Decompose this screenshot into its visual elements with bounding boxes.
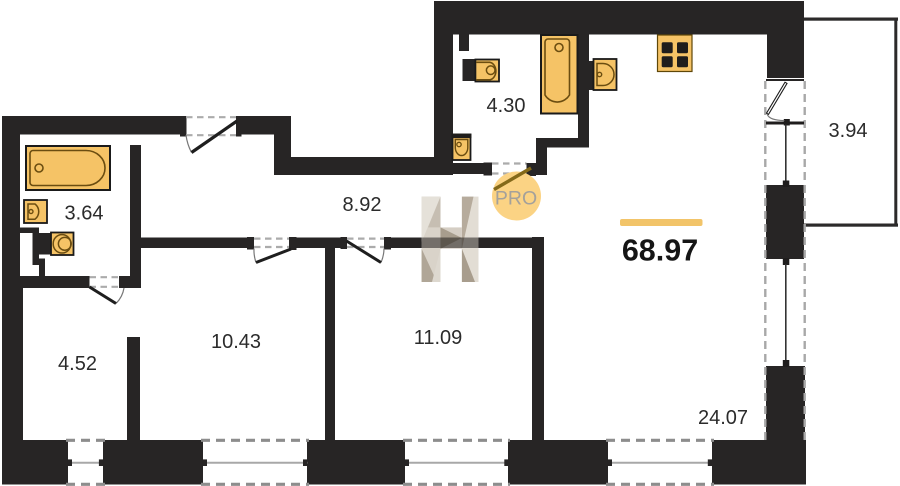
svg-text:4.52: 4.52 xyxy=(58,353,97,375)
svg-text:4.30: 4.30 xyxy=(487,95,526,117)
svg-text:10.43: 10.43 xyxy=(211,331,261,353)
svg-text:24.07: 24.07 xyxy=(698,407,748,429)
svg-text:3.94: 3.94 xyxy=(829,120,868,142)
svg-text:68.97: 68.97 xyxy=(622,234,698,268)
svg-text:8.92: 8.92 xyxy=(343,194,382,216)
svg-text:PRO: PRO xyxy=(495,188,537,210)
svg-text:11.09: 11.09 xyxy=(414,327,463,349)
svg-text:3.64: 3.64 xyxy=(65,203,104,225)
